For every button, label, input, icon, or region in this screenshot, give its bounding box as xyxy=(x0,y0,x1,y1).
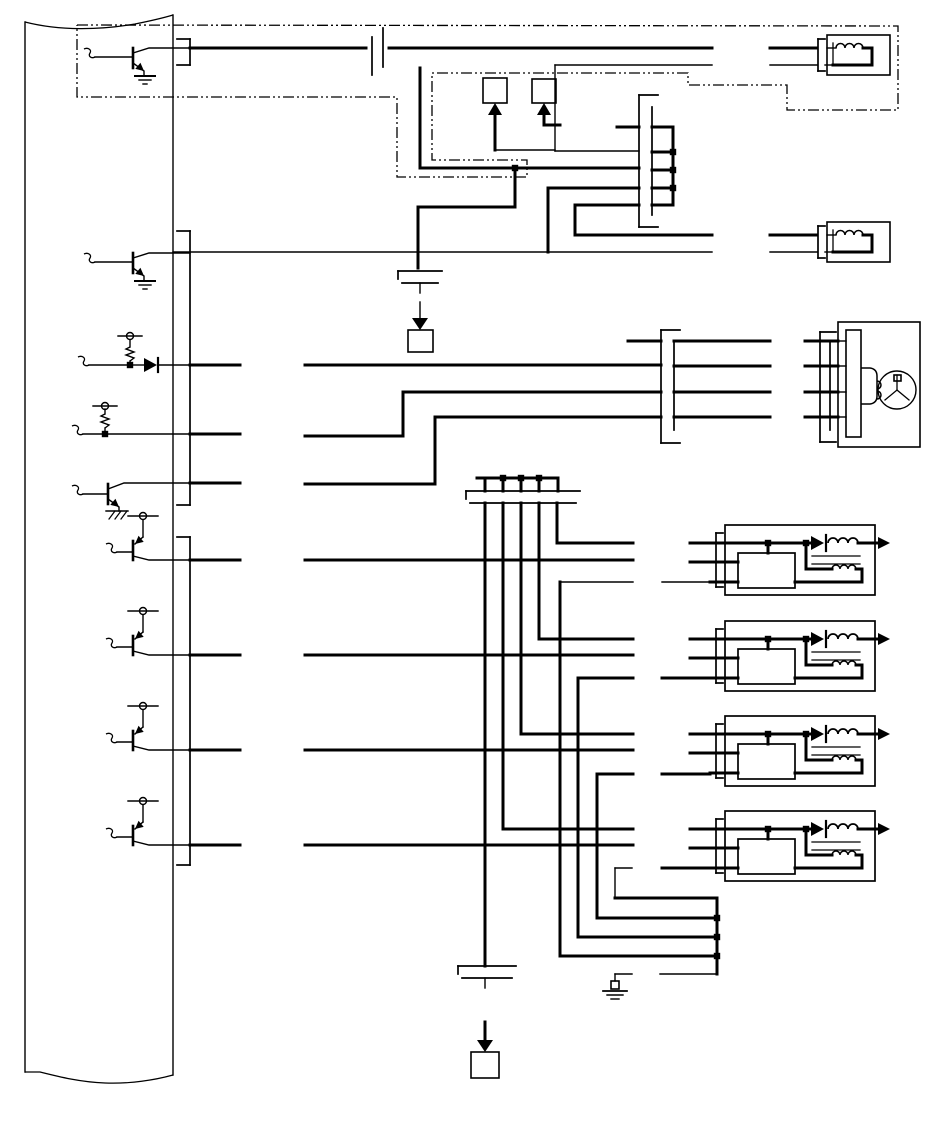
diode-icon xyxy=(144,358,157,372)
junction-dot xyxy=(714,915,720,921)
wire xyxy=(557,503,633,543)
wire xyxy=(420,68,639,168)
coil-winding-icon xyxy=(828,538,858,543)
ignition-coil-box xyxy=(725,811,875,881)
ground-hatch-icon xyxy=(109,511,115,519)
wire-break-squiggle xyxy=(106,733,117,742)
coil-winding-icon xyxy=(836,44,863,49)
solenoid-box xyxy=(827,35,890,75)
diode-icon xyxy=(811,536,824,550)
igniter-box xyxy=(738,839,795,874)
resistor-icon xyxy=(101,414,109,428)
wire-break-squiggle xyxy=(106,638,117,647)
coil-winding-icon xyxy=(828,729,858,734)
junction-dot xyxy=(670,185,676,191)
transistor-collector xyxy=(133,651,190,655)
wire-break-squiggle xyxy=(84,253,95,262)
diode-icon xyxy=(811,727,824,741)
coil-winding-icon xyxy=(832,756,856,760)
wire-break-squiggle xyxy=(72,485,83,494)
wire-break-squiggle xyxy=(78,356,89,365)
junction-dot xyxy=(500,475,506,481)
igniter-box xyxy=(738,649,795,684)
wire xyxy=(833,235,872,252)
wire-break-squiggle xyxy=(106,828,117,837)
motor-phase-line xyxy=(885,390,897,400)
offpage-arrow-icon xyxy=(488,103,502,115)
transistor-collector xyxy=(133,746,190,750)
wire-break-squiggle xyxy=(84,48,95,57)
offpage-arrow-icon xyxy=(477,1040,493,1052)
coil-winding-icon xyxy=(836,231,863,236)
coil-winding-icon xyxy=(832,851,856,855)
ignition-coil-box xyxy=(725,621,875,691)
junction-dot xyxy=(512,165,518,171)
spark-output-arrow xyxy=(878,728,890,740)
ground-hatch-icon xyxy=(115,511,121,519)
igniter-box xyxy=(738,744,795,779)
ecm-torn-bottom xyxy=(25,1072,173,1083)
transistor-collector xyxy=(133,253,190,258)
coil-winding-icon xyxy=(828,634,858,639)
offpage-box xyxy=(408,330,433,352)
ignition-coil-box xyxy=(725,525,875,595)
coil-winding-icon xyxy=(828,824,858,829)
coil-winding-icon xyxy=(832,661,856,665)
igniter-box xyxy=(738,553,795,588)
motor-winding-shape xyxy=(861,368,877,404)
wire-break-squiggle xyxy=(72,425,83,434)
wire xyxy=(539,503,633,639)
ground-hatch-icon xyxy=(121,511,127,519)
offpage-box xyxy=(471,1052,499,1078)
offpage-box xyxy=(532,79,556,103)
schematic-page xyxy=(0,0,950,1125)
resistor-icon xyxy=(126,347,134,361)
wire-break-squiggle xyxy=(106,543,117,552)
junction-dot xyxy=(714,934,720,940)
wire xyxy=(305,392,661,436)
ground-bolt xyxy=(611,981,619,989)
solenoid-box xyxy=(827,222,890,262)
junction-dot xyxy=(670,167,676,173)
motor-phase-line xyxy=(897,390,909,400)
coil-winding-icon xyxy=(832,565,856,569)
junction-dot xyxy=(670,149,676,155)
wire xyxy=(833,48,872,65)
diode-icon xyxy=(811,822,824,836)
wire xyxy=(418,168,515,268)
spark-output-arrow xyxy=(878,633,890,645)
spark-output-arrow xyxy=(878,823,890,835)
wiring-diagram xyxy=(0,0,950,1125)
stepper-inner-connector xyxy=(846,330,861,437)
transistor-collector xyxy=(133,841,190,845)
junction-dot xyxy=(518,475,524,481)
transistor-collector xyxy=(133,48,190,53)
ignition-coil-box xyxy=(725,716,875,786)
ecm-torn-top xyxy=(25,15,173,29)
wire xyxy=(575,205,712,235)
offpage-arrow-icon xyxy=(537,103,551,115)
transistor-collector xyxy=(133,556,190,560)
junction-dot xyxy=(714,953,720,959)
diode-icon xyxy=(811,632,824,646)
offpage-arrow-icon xyxy=(412,318,428,330)
transistor-collector xyxy=(108,483,190,489)
spark-output-arrow xyxy=(878,537,890,549)
junction-dot xyxy=(536,475,542,481)
wire xyxy=(305,417,661,484)
offpage-box xyxy=(483,78,507,103)
